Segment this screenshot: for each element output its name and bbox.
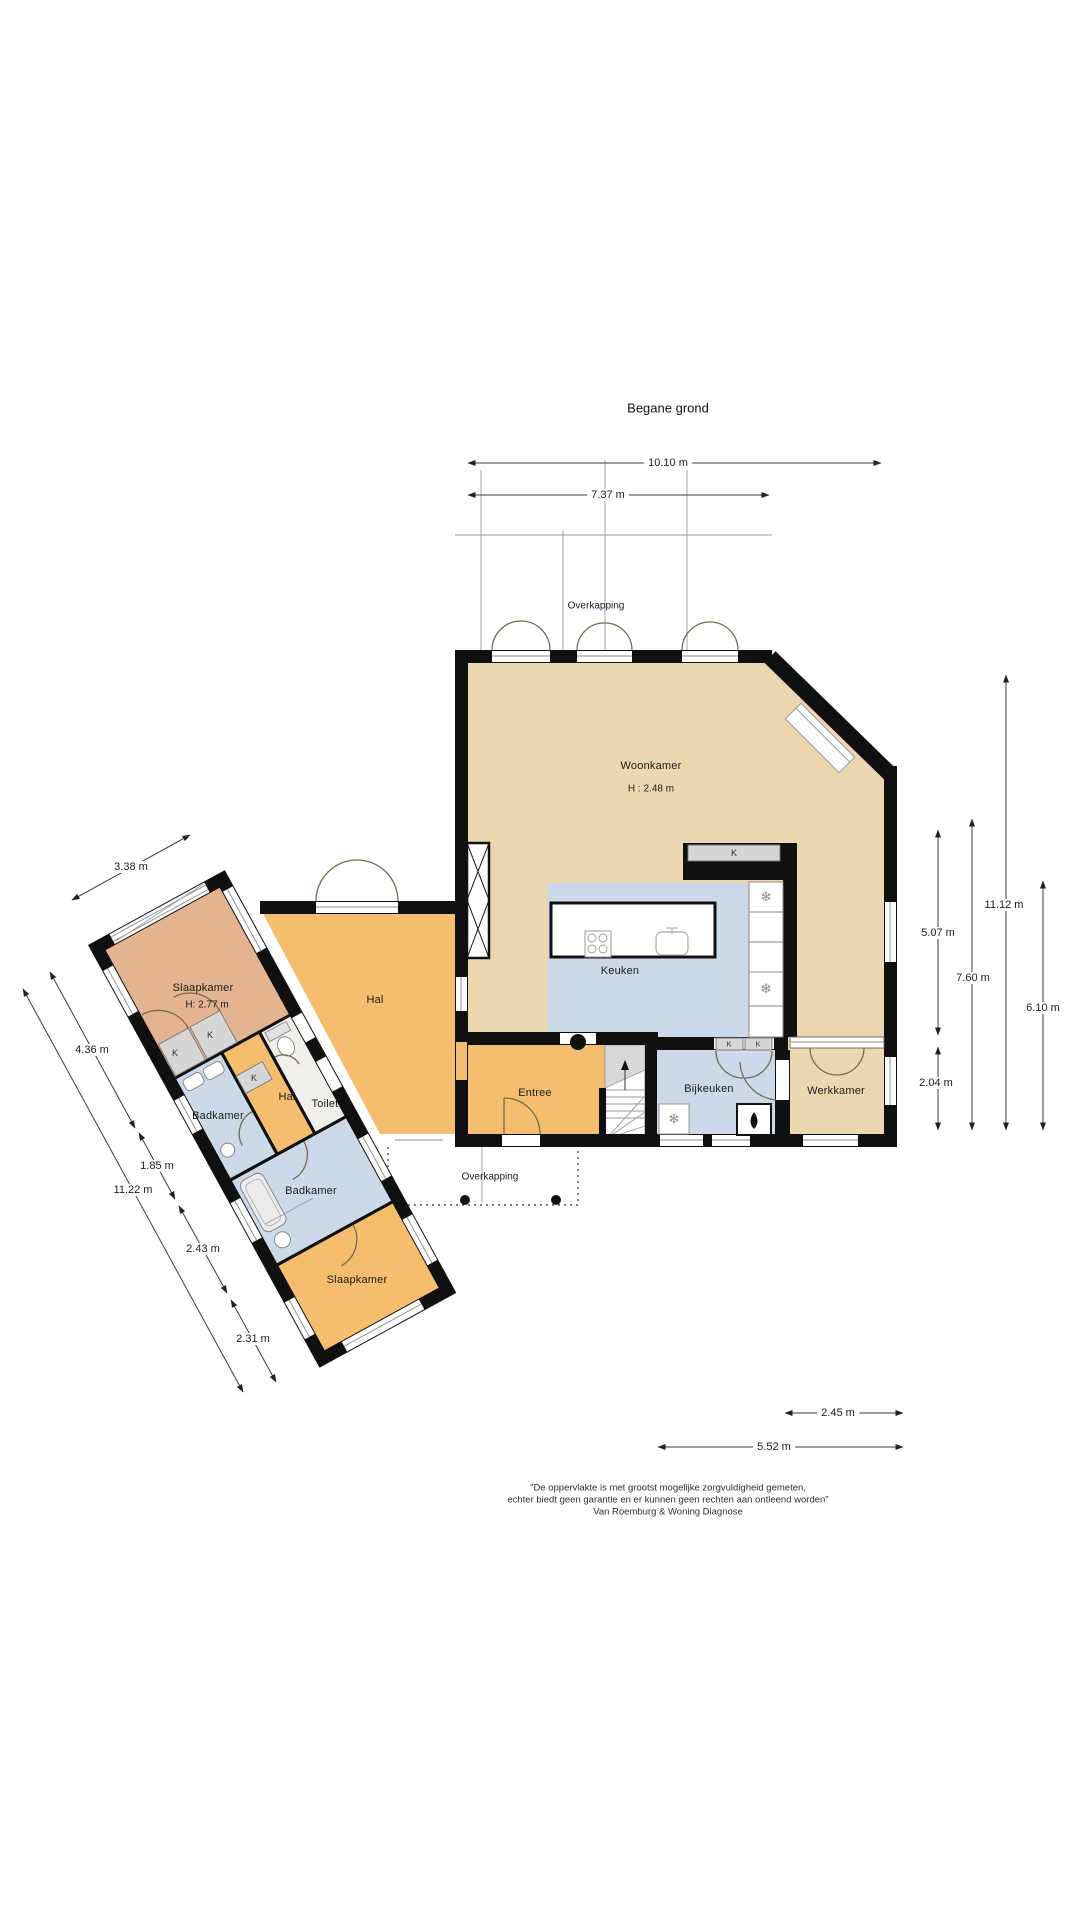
dim-right-760: 7.60 m bbox=[952, 972, 994, 984]
footer-company: Van Roemburg & Woning Diagnose bbox=[593, 1507, 743, 1518]
room-height-woonkamer: H : 2.48 m bbox=[628, 784, 674, 795]
snowflake-icon: ❄ bbox=[760, 889, 772, 906]
dim-top-width: 10.10 m bbox=[644, 457, 692, 469]
dim-top-inner-width: 7.37 m bbox=[587, 489, 629, 501]
room-label-slaapkamer2: Slaapkamer bbox=[327, 1274, 388, 1286]
dim-wing-width: 3.38 m bbox=[110, 861, 152, 873]
room-label-toilet: Toilet bbox=[312, 1098, 339, 1110]
dim-right-507: 5.07 m bbox=[917, 927, 959, 939]
room-label-entree: Entree bbox=[518, 1087, 552, 1099]
dim-bottom-552: 5.52 m bbox=[753, 1441, 795, 1453]
room-label-hal: Hal bbox=[366, 994, 383, 1006]
dim-wing-436: 4.36 m bbox=[71, 1044, 113, 1056]
room-label-werkkamer: Werkkamer bbox=[807, 1085, 865, 1097]
room-label-hal-wing: Hal bbox=[278, 1091, 295, 1103]
dim-wing-231: 2.31 m bbox=[232, 1333, 274, 1345]
dim-bottom-245: 2.45 m bbox=[817, 1407, 859, 1419]
room-label-slaapkamer1: Slaapkamer bbox=[173, 982, 234, 994]
room-label-keuken: Keuken bbox=[601, 965, 640, 977]
dim-right-610: 6.10 m bbox=[1022, 1002, 1064, 1014]
shaft bbox=[467, 843, 489, 958]
kitchen-sink bbox=[656, 932, 688, 955]
room-label-bijkeuken: Bijkeuken bbox=[684, 1083, 734, 1095]
closet-mark-bijkeuken-1: K bbox=[726, 1040, 731, 1049]
room-label-badkamer2: Badkamer bbox=[285, 1185, 337, 1197]
closet-mark-wing-2: K bbox=[207, 1030, 213, 1040]
snowflake-icon: ❄ bbox=[760, 981, 772, 998]
room-label-woonkamer: Woonkamer bbox=[621, 760, 682, 772]
label-overkapping-bottom: Overkapping bbox=[462, 1172, 519, 1183]
footer-disclaimer-line1: "De oppervlakte is met grootst mogelijke… bbox=[530, 1483, 806, 1494]
closet-mark-kitchen: K bbox=[731, 848, 737, 858]
dim-wing-243: 2.43 m bbox=[182, 1243, 224, 1255]
dim-right-204: 2.04 m bbox=[915, 1077, 957, 1089]
room-height-slaapkamer1: H: 2.77 m bbox=[185, 1000, 228, 1011]
floorplan-page: Begane grond 10.10 m 7.37 m 5.07 m 2.04 … bbox=[0, 0, 1080, 1920]
closet-mark-bijkeuken-2: K bbox=[755, 1040, 760, 1049]
snowflake-icon: ❄ bbox=[668, 1111, 680, 1128]
dim-right-1112: 11.12 m bbox=[981, 899, 1028, 911]
dim-wing-total: 11.22 m bbox=[110, 1184, 157, 1196]
room-label-badkamer1: Badkamer bbox=[192, 1110, 244, 1122]
kitchen-island bbox=[551, 903, 715, 957]
page-title: Begane grond bbox=[627, 401, 709, 416]
canopy-post bbox=[551, 1195, 561, 1205]
floorplan-drawing bbox=[0, 0, 1080, 1920]
label-overkapping-top: Overkapping bbox=[568, 601, 625, 612]
dim-wing-185: 1.85 m bbox=[136, 1160, 178, 1172]
closet-mark-wing-1: K bbox=[172, 1048, 178, 1058]
footer-disclaimer-line2: echter biedt geen garantie en er kunnen … bbox=[507, 1495, 828, 1506]
closet-mark-wing-hal: K bbox=[251, 1073, 257, 1083]
canopy-post bbox=[460, 1195, 470, 1205]
column bbox=[570, 1034, 586, 1050]
staircase bbox=[605, 1045, 645, 1140]
